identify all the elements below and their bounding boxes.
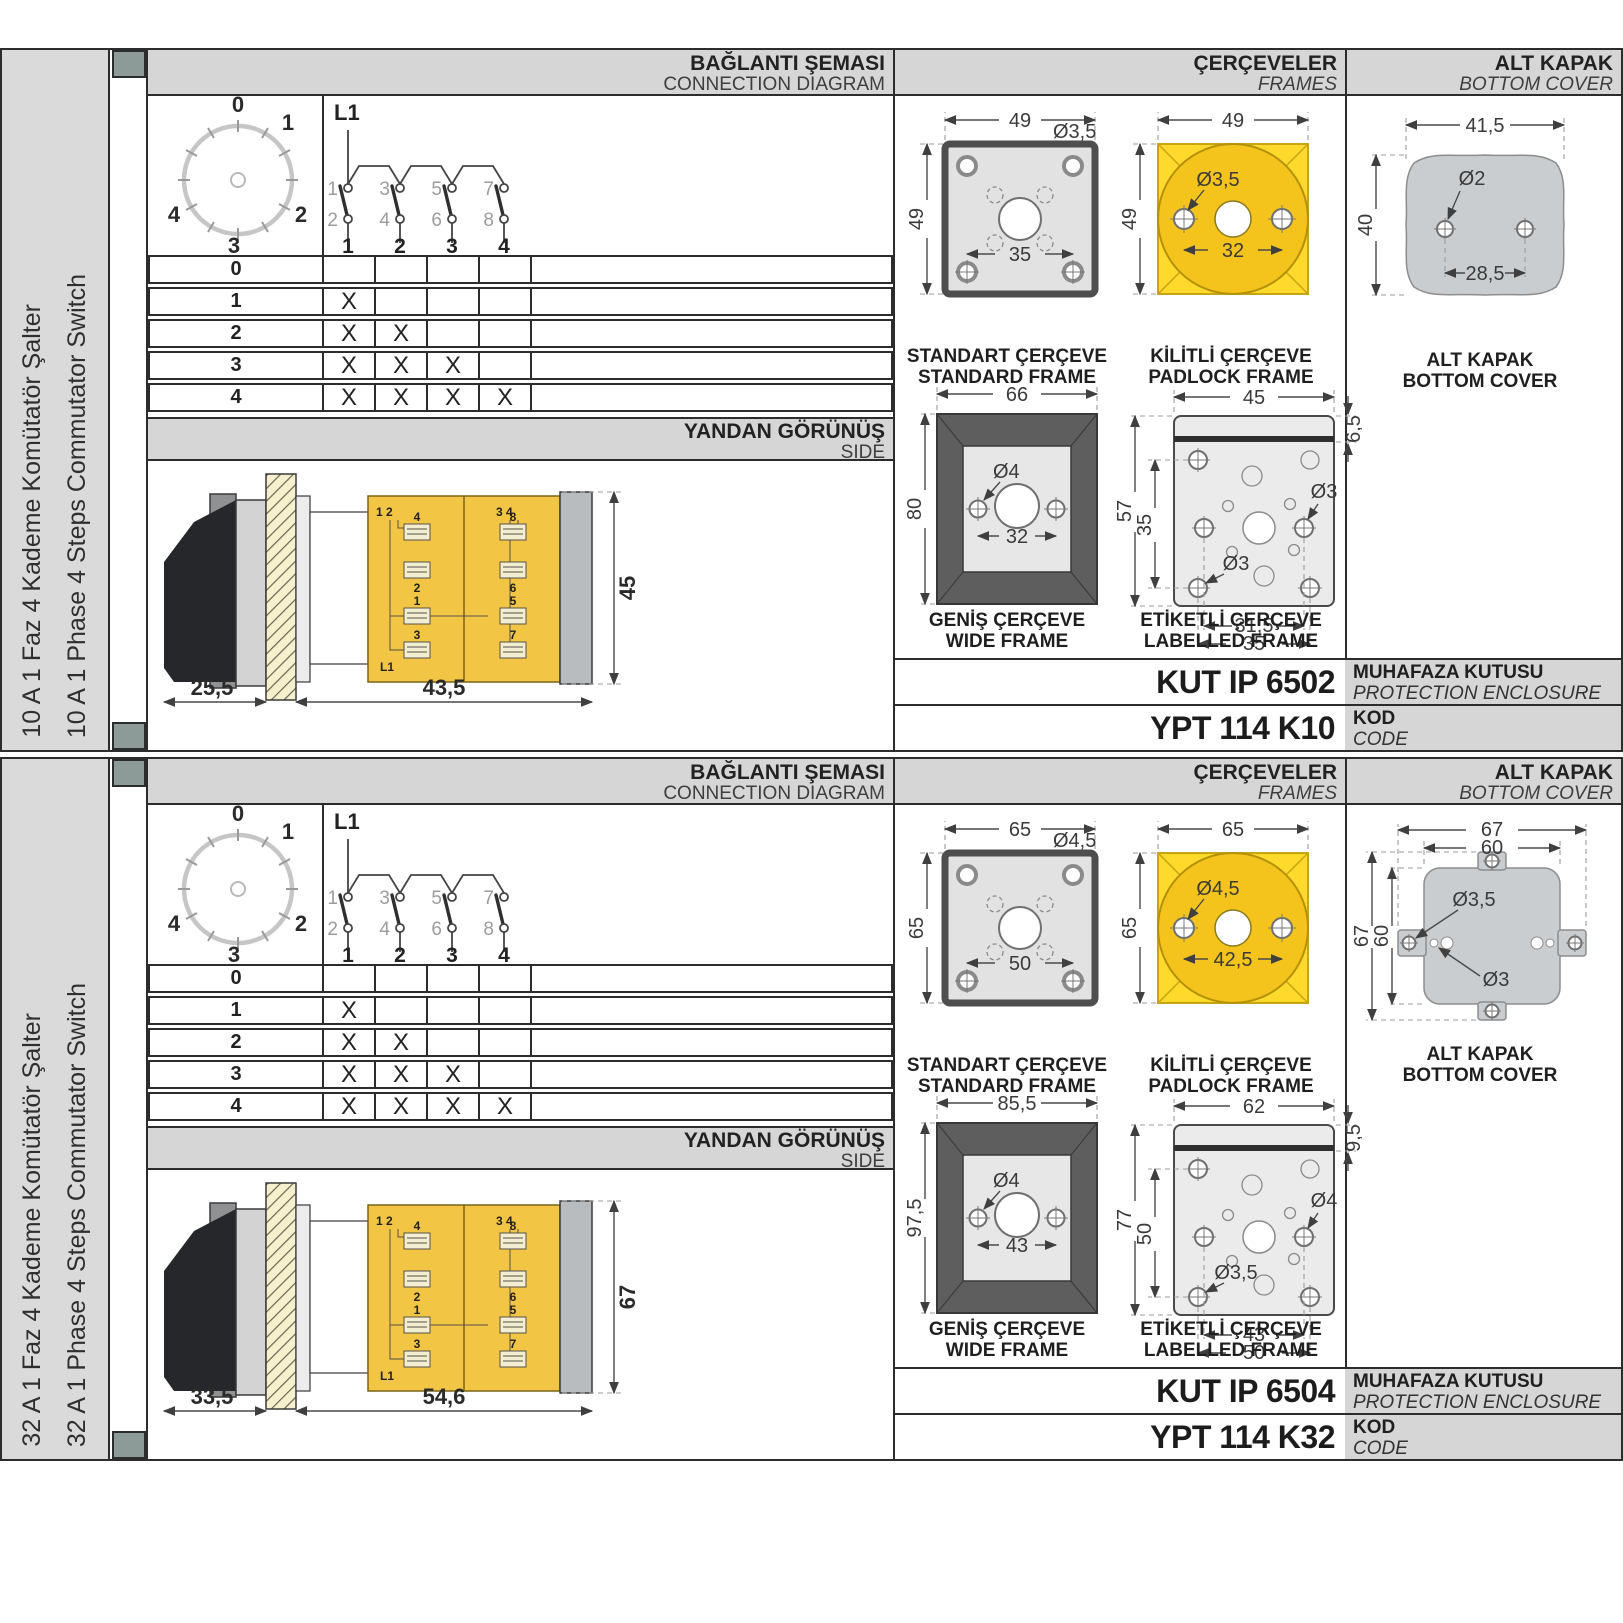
dial-pos-4: 4 xyxy=(168,202,181,227)
svg-text:65: 65 xyxy=(907,917,928,939)
svg-text:Ø2: Ø2 xyxy=(1459,168,1486,190)
dial-pos-2: 2 xyxy=(295,202,307,227)
step-label: 0 xyxy=(150,257,324,282)
svg-text:7: 7 xyxy=(483,888,494,909)
svg-text:Ø4: Ø4 xyxy=(993,1170,1020,1192)
svg-text:4: 4 xyxy=(414,510,421,524)
header-bottom-cover: ALT KAPAK BOTTOM COVER xyxy=(1347,759,1621,805)
svg-text:49: 49 xyxy=(907,208,928,230)
svg-text:3: 3 xyxy=(446,944,458,963)
labelled-frame-caption: ETİKETLİ ÇERÇEVELABELLED FRAME xyxy=(1117,610,1345,652)
svg-text:Ø4: Ø4 xyxy=(993,461,1020,483)
feed-label: L1 xyxy=(334,100,360,125)
header-en: FRAMES xyxy=(895,75,1337,95)
svg-text:50: 50 xyxy=(1134,1223,1156,1245)
svg-text:8: 8 xyxy=(483,919,494,940)
svg-text:1: 1 xyxy=(282,819,294,844)
header-frames: ÇERÇEVELER FRAMES xyxy=(895,50,1345,96)
svg-text:2: 2 xyxy=(327,919,338,940)
product-code-row: YPT 114 K10 KOD CODE xyxy=(895,704,1621,750)
side-view-header: YANDAN GÖRÜNÜŞ SIDE xyxy=(148,1126,893,1170)
product-title-en: 10 A 1 Phase 4 Steps Commutator Switch xyxy=(63,274,92,738)
table-row: 1X xyxy=(148,996,893,1025)
svg-text:9,5: 9,5 xyxy=(1343,1124,1362,1152)
header-frames: ÇERÇEVELER FRAMES xyxy=(895,759,1345,805)
svg-text:65: 65 xyxy=(1120,917,1141,939)
svg-text:8: 8 xyxy=(483,210,494,231)
svg-text:7: 7 xyxy=(510,628,517,642)
header-tr: BAĞLANTI ŞEMASI xyxy=(148,53,885,75)
svg-text:4: 4 xyxy=(379,210,390,231)
standard-frame-drawing: 49 Ø3,5 35 49 xyxy=(907,100,1112,350)
contact-unit: 3 4 2 xyxy=(379,888,405,963)
svg-text:3: 3 xyxy=(228,942,240,964)
svg-text:32: 32 xyxy=(1222,240,1244,262)
table-row: 1X xyxy=(148,287,893,316)
svg-text:97,5: 97,5 xyxy=(907,1199,926,1238)
header-tr: ÇERÇEVELER xyxy=(895,53,1337,75)
table-row: 0 xyxy=(148,255,893,284)
table-row: 4XXXX xyxy=(148,383,893,412)
dial-pos-3: 3 xyxy=(228,233,240,255)
table-row: 0 xyxy=(148,964,893,993)
mounting-panel xyxy=(266,1183,296,1409)
header-en: CONNECTION DIAGRAM xyxy=(148,75,885,95)
terminal-label: 1 xyxy=(342,235,354,254)
table-row: 3XXX xyxy=(148,1060,893,1089)
svg-text:57: 57 xyxy=(1114,500,1136,522)
svg-text:77: 77 xyxy=(1114,1209,1136,1231)
contact-unit: 1 2 1 xyxy=(327,179,354,254)
header-bottom-cover: ALT KAPAK BOTTOM COVER xyxy=(1347,50,1621,96)
product-section-32a: 32 A 1 Faz 4 Kademe Komütatör Şalter 32 … xyxy=(0,757,1623,1461)
product-title-en: 32 A 1 Phase 4 Steps Commutator Switch xyxy=(63,983,92,1447)
enclosure-label: MUHAFAZA KUTUSU PROTECTION ENCLOSURE xyxy=(1345,660,1621,704)
bottom-cover-caption: ALT KAPAKBOTTOM COVER xyxy=(1347,350,1613,392)
contact-unit: 1 2 1 xyxy=(327,888,354,963)
svg-text:1: 1 xyxy=(327,888,338,909)
index-tab-square xyxy=(112,759,146,787)
position-dial-drawing: 0 1 2 3 4 xyxy=(148,805,322,964)
svg-text:49: 49 xyxy=(1009,110,1031,132)
product-code: YPT 114 K10 xyxy=(895,706,1345,750)
product-title-tr: 10 A 1 Faz 4 Kademe Komütatör Şalter xyxy=(18,304,47,738)
header-en: BOTTOM COVER xyxy=(1347,75,1613,95)
switching-table: 0 1X 2XX 3XXX 4XXXX xyxy=(148,964,893,1124)
enclosure-code-row: KUT IP 6502 MUHAFAZA KUTUSU PROTECTION E… xyxy=(895,658,1621,704)
contact-unit: 7 8 4 xyxy=(483,179,510,254)
svg-text:4: 4 xyxy=(498,944,510,963)
svg-text:L1: L1 xyxy=(380,1369,394,1383)
product-code-row: YPT 114 K32 KOD CODE xyxy=(895,1413,1621,1459)
switch-handle xyxy=(164,1209,236,1391)
product-code: YPT 114 K32 xyxy=(895,1415,1345,1459)
wide-frame-drawing: 85,5 Ø4 43 97,5 xyxy=(907,1087,1112,1327)
svg-text:28,5: 28,5 xyxy=(1466,263,1505,285)
mounting-panel xyxy=(266,474,296,700)
enclosure-label: MUHAFAZA KUTUSU PROTECTION ENCLOSURE xyxy=(1345,1369,1621,1413)
svg-text:1: 1 xyxy=(342,944,354,963)
svg-text:33,5: 33,5 xyxy=(191,1384,234,1409)
svg-text:6: 6 xyxy=(510,1290,517,1304)
svg-text:65: 65 xyxy=(1009,819,1031,841)
dial-pos-1: 1 xyxy=(282,110,294,135)
side-view-drawing: 1 2 3 4 4 2 1 3 L1 8 6 5 7 25,5 43,5 45 xyxy=(148,466,748,712)
enclosure-code: KUT IP 6504 xyxy=(895,1369,1345,1413)
svg-text:2: 2 xyxy=(414,1290,421,1304)
table-row: 4XXXX xyxy=(148,1092,893,1121)
svg-text:8: 8 xyxy=(510,510,517,524)
feed-label: L1 xyxy=(380,660,394,674)
svg-text:85,5: 85,5 xyxy=(998,1093,1037,1115)
svg-text:1: 1 xyxy=(414,594,421,608)
switch-position-dial-cell: 0 1 2 3 4 xyxy=(148,96,324,255)
dim-handle-depth: 25,5 xyxy=(191,675,234,700)
svg-text:0: 0 xyxy=(232,805,244,826)
enclosure-code-row: KUT IP 6504 MUHAFAZA KUTUSU PROTECTION E… xyxy=(895,1367,1621,1413)
header-connection-diagram: BAĞLANTI ŞEMASI CONNECTION DIAGRAM xyxy=(148,759,893,805)
bottom-cover-drawing: 67 60 67 60 Ø3,5 Ø3 xyxy=(1352,814,1623,1034)
svg-text:Ø4,5: Ø4,5 xyxy=(1196,878,1239,900)
index-tab-square xyxy=(112,722,146,750)
product-sidebar: 32 A 1 Faz 4 Kademe Komütatör Şalter 32 … xyxy=(2,759,110,1459)
svg-text:L1: L1 xyxy=(334,809,360,834)
enclosure-code: KUT IP 6502 xyxy=(895,660,1345,704)
dim-height: 45 xyxy=(615,576,640,600)
standard-frame-drawing: 65 Ø4,5 50 65 xyxy=(907,809,1112,1059)
contact-unit: 7 8 4 xyxy=(483,888,510,963)
contact-unit: 5 6 3 xyxy=(431,888,457,963)
switch-position-dial-cell: 0 1 2 3 4 xyxy=(148,805,324,964)
contact-unit: 5 6 3 xyxy=(431,179,457,254)
svg-text:6: 6 xyxy=(510,581,517,595)
svg-text:2: 2 xyxy=(295,911,307,936)
product-section-10a: 10 A 1 Faz 4 Kademe Komütatör Şalter 10 … xyxy=(0,48,1623,752)
svg-text:60: 60 xyxy=(1481,837,1503,859)
svg-text:Ø3,5: Ø3,5 xyxy=(1196,169,1239,191)
side-view-drawing: 1 2 3 4 4 2 1 3 L1 8 6 5 7 33,5 54,6 67 xyxy=(148,1175,748,1421)
padlock-frame-drawing: 49 Ø3,5 32 49 xyxy=(1120,100,1325,350)
svg-text:45: 45 xyxy=(1243,387,1265,409)
dial-pos-0: 0 xyxy=(232,96,244,117)
wide-frame-drawing: 66 Ø4 32 80 xyxy=(907,378,1112,618)
svg-text:2: 2 xyxy=(414,581,421,595)
code-label: KOD CODE xyxy=(1345,706,1621,750)
padlock-frame-drawing: 65 Ø4,5 42,5 65 xyxy=(1120,809,1325,1059)
svg-text:Ø3,5: Ø3,5 xyxy=(1452,889,1495,911)
svg-text:5: 5 xyxy=(510,594,517,608)
svg-text:Ø3,5: Ø3,5 xyxy=(1053,121,1096,143)
svg-text:Ø3: Ø3 xyxy=(1223,553,1250,575)
labelled-frame-caption: ETİKETLİ ÇERÇEVELABELLED FRAME xyxy=(1117,1319,1345,1361)
svg-text:80: 80 xyxy=(907,498,926,520)
table-row: 3XXX xyxy=(148,351,893,380)
svg-text:5: 5 xyxy=(431,888,442,909)
side-view-header: YANDAN GÖRÜNÜŞ SIDE xyxy=(148,417,893,461)
code-label: KOD CODE xyxy=(1345,1415,1621,1459)
contact-top-label: 1 xyxy=(327,179,338,200)
svg-text:50: 50 xyxy=(1009,953,1031,975)
svg-text:Ø3: Ø3 xyxy=(1311,481,1338,503)
svg-text:6,5: 6,5 xyxy=(1343,415,1362,443)
wide-frame-caption: GENİŞ ÇERÇEVEWIDE FRAME xyxy=(895,610,1119,652)
svg-text:66: 66 xyxy=(1006,384,1028,406)
dim-body-depth: 43,5 xyxy=(423,675,466,700)
svg-text:1: 1 xyxy=(414,1303,421,1317)
svg-text:Ø3: Ø3 xyxy=(1483,969,1510,991)
svg-text:67: 67 xyxy=(1352,925,1373,947)
svg-text:54,6: 54,6 xyxy=(423,1384,466,1409)
svg-text:49: 49 xyxy=(1222,110,1244,132)
contact-unit: 3 4 2 xyxy=(379,179,405,254)
svg-text:3: 3 xyxy=(379,888,390,909)
switch-handle xyxy=(164,500,236,682)
svg-text:3: 3 xyxy=(379,179,390,200)
terminal-corner-label: 1 2 xyxy=(376,505,393,519)
wide-frame-caption: GENİŞ ÇERÇEVEWIDE FRAME xyxy=(895,1319,1119,1361)
svg-text:2: 2 xyxy=(394,235,406,254)
svg-text:7: 7 xyxy=(483,179,494,200)
svg-text:3: 3 xyxy=(446,235,458,254)
svg-text:65: 65 xyxy=(1222,819,1244,841)
svg-text:Ø4,5: Ø4,5 xyxy=(1053,830,1096,852)
svg-text:43: 43 xyxy=(1006,1235,1028,1257)
svg-text:1 2: 1 2 xyxy=(376,1214,393,1228)
index-tab-square xyxy=(112,1431,146,1459)
svg-text:3: 3 xyxy=(414,1337,421,1351)
header-connection-diagram: BAĞLANTI ŞEMASI CONNECTION DIAGRAM xyxy=(148,50,893,96)
svg-text:42,5: 42,5 xyxy=(1214,949,1253,971)
svg-text:35: 35 xyxy=(1134,514,1156,536)
header-tr: ALT KAPAK xyxy=(1347,53,1613,75)
table-row: 2XX xyxy=(148,319,893,348)
contact-bottom-label: 2 xyxy=(327,210,338,231)
switching-table: 0 1X 2XX 3XXX 4XXXX xyxy=(148,255,893,415)
svg-text:4: 4 xyxy=(498,235,510,254)
bottom-cover-caption: ALT KAPAKBOTTOM COVER xyxy=(1347,1044,1613,1086)
svg-text:Ø3,5: Ø3,5 xyxy=(1214,1262,1257,1284)
svg-text:40: 40 xyxy=(1355,214,1377,236)
svg-text:5: 5 xyxy=(431,179,442,200)
svg-text:3: 3 xyxy=(414,628,421,642)
bottom-cover-drawing: 41,5 40 Ø2 28,5 xyxy=(1352,105,1618,349)
product-title-tr: 32 A 1 Faz 4 Kademe Komütatör Şalter xyxy=(18,1013,47,1447)
svg-text:2: 2 xyxy=(394,944,406,963)
contact-mark xyxy=(324,257,376,282)
position-dial-drawing: 0 1 2 3 4 xyxy=(148,96,322,255)
svg-text:5: 5 xyxy=(510,1303,517,1317)
svg-text:7: 7 xyxy=(510,1337,517,1351)
index-tab-square xyxy=(112,50,146,78)
svg-text:4: 4 xyxy=(168,911,181,936)
svg-text:32: 32 xyxy=(1006,526,1028,548)
table-row: 2XX xyxy=(148,1028,893,1057)
contact-circuit-drawing: L1 1 2 1 3 4 2 5 6 3 7 8 4 xyxy=(324,96,893,254)
svg-text:60: 60 xyxy=(1371,925,1393,947)
catalog-page: 10 A 1 Faz 4 Kademe Komütatör Şalter 10 … xyxy=(0,0,1623,1623)
svg-text:6: 6 xyxy=(431,919,442,940)
product-sidebar: 10 A 1 Faz 4 Kademe Komütatör Şalter 10 … xyxy=(2,50,110,750)
svg-text:62: 62 xyxy=(1243,1096,1265,1118)
svg-text:Ø4: Ø4 xyxy=(1311,1190,1338,1212)
svg-text:41,5: 41,5 xyxy=(1466,115,1505,137)
svg-text:8: 8 xyxy=(510,1219,517,1233)
contact-circuit-drawing: L1 1 2 1 3 4 2 5 6 3 7 8 4 xyxy=(324,805,893,963)
svg-text:35: 35 xyxy=(1009,244,1031,266)
svg-text:67: 67 xyxy=(615,1285,640,1309)
svg-text:49: 49 xyxy=(1120,208,1141,230)
svg-text:6: 6 xyxy=(431,210,442,231)
svg-text:4: 4 xyxy=(379,919,390,940)
svg-text:4: 4 xyxy=(414,1219,421,1233)
